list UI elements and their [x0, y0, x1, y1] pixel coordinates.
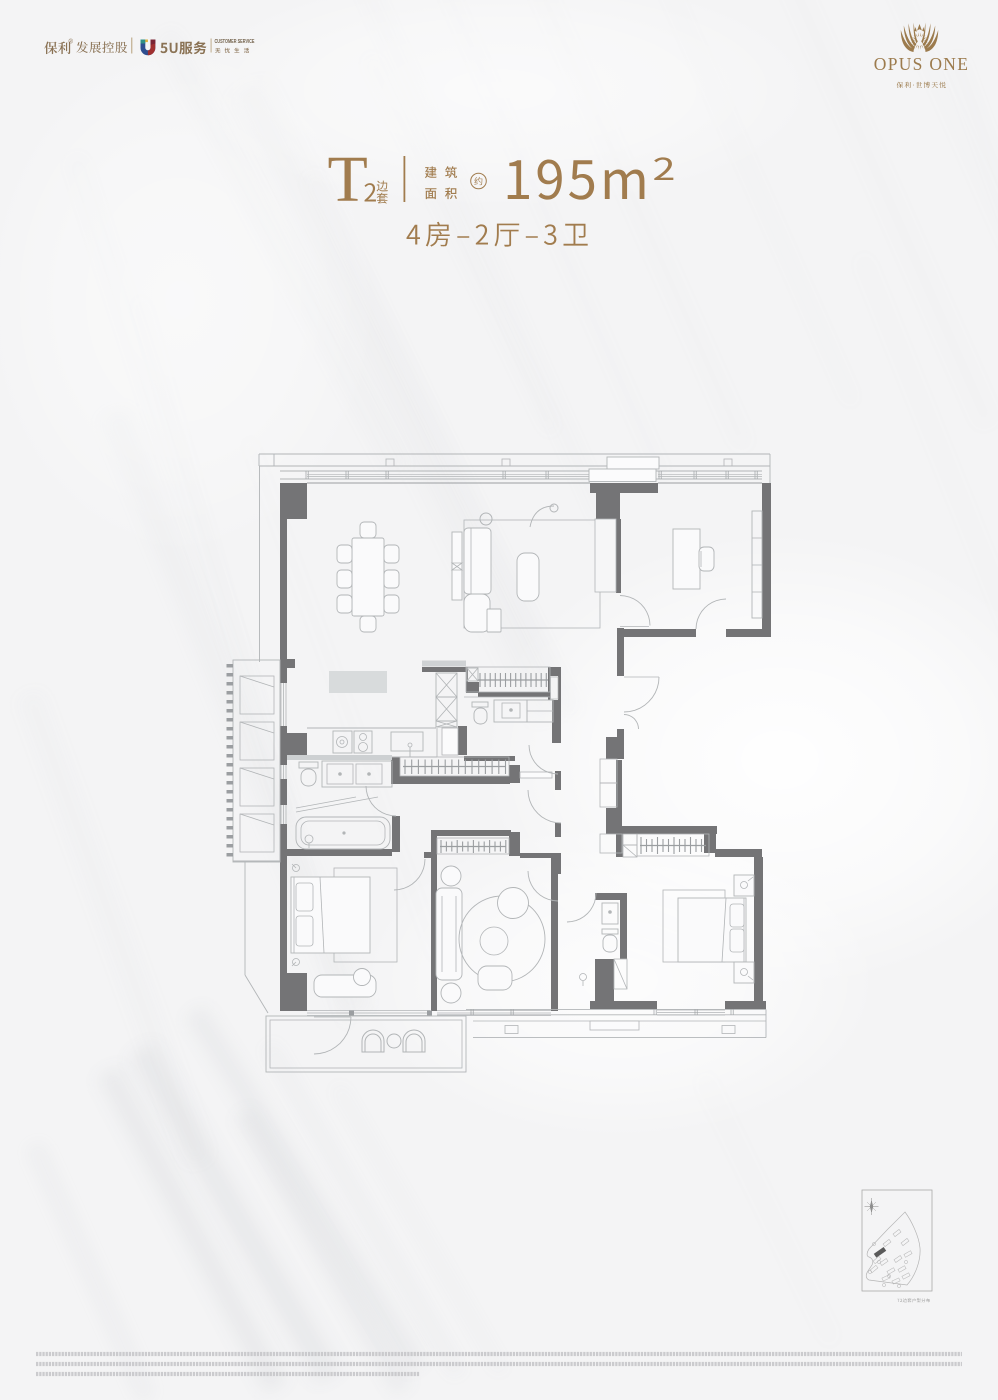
svg-text:T: T — [328, 143, 368, 216]
svg-text:OPUS ONE: OPUS ONE — [874, 54, 969, 74]
svg-text:CUSTOMER SERVICE: CUSTOMER SERVICE — [215, 39, 255, 45]
svg-text:®: ® — [69, 39, 74, 46]
